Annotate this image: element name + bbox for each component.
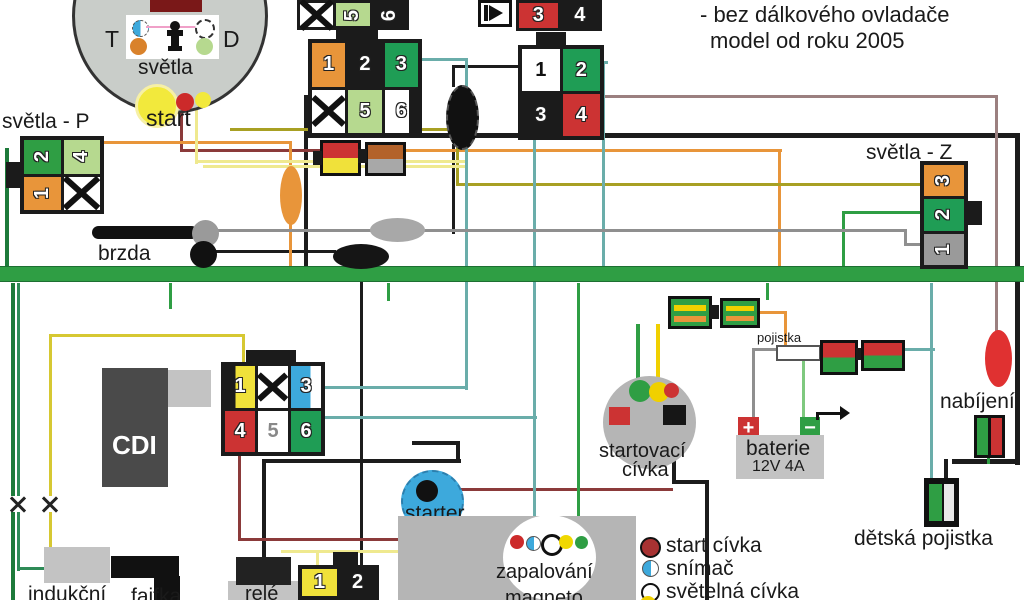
pin: 1 <box>225 366 255 408</box>
wire-gray <box>752 348 755 418</box>
lamp-dot-icon <box>195 19 215 39</box>
pin: 4 <box>64 140 101 174</box>
magneto-label-2: magneto <box>505 587 583 600</box>
pin: 6 <box>373 3 406 27</box>
legend-item-label: snímač <box>666 557 734 581</box>
fuse-block <box>320 140 361 176</box>
wire-green <box>577 283 580 541</box>
charging-bulb-icon <box>985 330 1012 387</box>
wire-black <box>452 144 455 234</box>
wire-yellow <box>49 334 245 337</box>
wire-black <box>262 459 266 560</box>
gauge-top-block <box>150 0 202 12</box>
child-fuse-label: dětská pojistka <box>854 527 993 551</box>
spark-plug-cap-label: fajfka <box>131 585 181 600</box>
spark-plug-cap <box>111 556 179 578</box>
cross-pin <box>312 90 345 134</box>
pin: 5 <box>258 411 288 453</box>
wire-light-yellow <box>195 108 198 164</box>
wire-brown <box>995 95 998 333</box>
pin: 2 <box>340 569 375 596</box>
pin: 3 <box>924 165 964 196</box>
relay-label: relé <box>245 583 278 600</box>
indicator-bulb-icon <box>280 166 302 225</box>
junction-cross-icon <box>10 496 26 512</box>
bulb-icon <box>333 244 389 269</box>
wire-brown <box>600 95 998 98</box>
connector-tab <box>313 151 322 165</box>
wire-green <box>17 283 20 571</box>
cdi-attachment <box>168 370 211 407</box>
wire-green <box>842 211 845 271</box>
fuse-block <box>365 142 406 176</box>
brake-label: brzda <box>98 242 151 266</box>
cross-pin <box>258 366 288 408</box>
pin: 4 <box>563 94 601 136</box>
indicator-right-label: D <box>223 26 240 53</box>
wire-green <box>387 283 390 301</box>
bulb-icon <box>446 85 479 150</box>
pin: 2 <box>348 43 381 87</box>
legend-start-coil-icon <box>640 537 661 558</box>
magneto-plug-connector: 1 2 <box>298 565 379 600</box>
coil-black-terminal <box>663 405 686 425</box>
connector-tab <box>358 149 367 163</box>
battery-spec: 12V 4A <box>752 458 804 476</box>
pin: 1 <box>24 177 61 211</box>
coil-green-dot-icon <box>629 380 651 402</box>
cell <box>944 484 954 521</box>
pin: 3 <box>519 3 558 28</box>
wire-dark-red <box>238 452 241 541</box>
connector-tab <box>966 201 982 225</box>
rear-lights-connector: 3 2 1 <box>920 161 968 269</box>
wire-black <box>360 255 363 570</box>
ground-bus <box>0 266 1024 282</box>
induction-coil <box>44 547 110 583</box>
bulb-icon <box>370 218 425 242</box>
legend-sensor-icon <box>642 560 659 577</box>
arrow-line <box>816 412 842 415</box>
wire-teal <box>533 134 536 544</box>
pin: 1 <box>302 569 337 596</box>
arrow-line <box>816 412 819 420</box>
wire-teal <box>802 358 805 418</box>
wire-dark-red <box>430 488 673 491</box>
pin: 3 <box>291 366 321 408</box>
handlebar-connector: 1 2 3 5 6 <box>308 39 422 137</box>
pin: 2 <box>924 199 964 230</box>
sensor-dot-icon <box>132 20 149 37</box>
wire-black <box>412 441 460 445</box>
induction-coil-label: indukční <box>28 583 106 600</box>
stripe <box>674 305 706 311</box>
brake-switch-black-icon <box>190 241 217 268</box>
pin: 1 <box>312 43 345 87</box>
pin: 3 <box>522 94 560 136</box>
cdi-label: CDI <box>112 430 157 461</box>
magneto-label-1: zapalování <box>496 561 593 584</box>
fuse-holder <box>668 296 712 329</box>
pin: 3 <box>385 43 418 87</box>
starter-terminal-icon <box>416 480 438 502</box>
coil-red-terminal <box>609 407 630 425</box>
pin: 1 <box>924 234 964 265</box>
arrow-right-icon <box>840 406 850 420</box>
pin: 4 <box>225 411 255 453</box>
fuse-symbol <box>776 345 821 361</box>
pin: 2 <box>24 140 61 174</box>
start-coil-label-2: cívka <box>622 459 669 482</box>
cross-pin <box>300 3 333 27</box>
wire-black <box>952 459 1020 464</box>
start-label: start <box>146 105 191 132</box>
cross-pin <box>64 177 101 211</box>
wire-teal <box>930 283 933 480</box>
wiring-diagram: T D světla start světla - P 2 4 1 brzda … <box>0 0 1024 600</box>
front-lights-label: světla - P <box>2 110 90 134</box>
turn-dot-icon <box>130 38 147 55</box>
wire-dark-green <box>11 283 15 600</box>
wire-green <box>842 211 924 214</box>
wire-olive <box>456 183 926 186</box>
wire-black <box>452 65 455 87</box>
magneto-green-dot-icon <box>575 536 588 549</box>
wire-yellow <box>49 334 52 550</box>
indicator-left-label: T <box>105 26 119 53</box>
pin: 6 <box>291 411 321 453</box>
wire-dark-red <box>180 149 323 152</box>
diagram-title-line1: - bez dálkového ovladače <box>700 2 950 28</box>
fuse-label: pojistka <box>757 330 801 345</box>
stripe <box>726 316 754 321</box>
cdi-unit: CDI <box>102 368 168 487</box>
legend-item-label: světelná cívka <box>666 580 799 600</box>
cdi-connector: 1 3 4 5 6 <box>221 362 325 456</box>
magneto-start-coil-dot-icon <box>510 535 524 549</box>
wire-black <box>1015 133 1020 465</box>
charging-connector <box>974 415 1005 458</box>
wire-black <box>452 65 520 68</box>
cell <box>929 484 942 521</box>
pin: 4 <box>561 3 600 28</box>
wire-black <box>456 443 460 461</box>
fuse-plug <box>820 340 858 375</box>
fuse-holder <box>720 298 760 328</box>
flag-icon <box>478 0 512 27</box>
pin: 1 <box>522 49 560 91</box>
wire-teal <box>322 416 537 419</box>
wire-black <box>672 480 709 484</box>
fuse-plug <box>861 340 905 371</box>
magneto-sensor-dot-icon <box>526 536 541 551</box>
lights-label: světla <box>138 56 193 80</box>
stripe <box>726 306 754 311</box>
pin: 5 <box>336 3 369 27</box>
charging-label: nabíjení <box>940 390 1015 414</box>
wire-teal <box>322 386 468 389</box>
wire-gray <box>207 229 907 232</box>
coil-red-dot-icon <box>664 383 679 398</box>
brake-lever <box>92 226 198 239</box>
key-icon <box>166 21 184 55</box>
wire-teal <box>420 58 468 61</box>
magneto-yellow-dot-icon <box>559 535 573 549</box>
wire-green <box>766 283 769 300</box>
diagram-title-line2: model od roku 2005 <box>710 28 904 54</box>
pin: 5 <box>348 90 381 134</box>
wire-orange <box>778 149 781 268</box>
start-small-dot-icon <box>195 92 211 108</box>
connector-tab <box>710 305 719 319</box>
wire-green <box>169 283 172 309</box>
key-switch-connector: 1 2 3 4 <box>518 45 604 140</box>
child-fuse <box>924 478 959 527</box>
stripe <box>674 316 706 322</box>
top-right-connector: 3 4 <box>516 0 602 31</box>
junction-cross-icon <box>42 496 58 512</box>
drive-dot-icon <box>196 38 213 55</box>
pin: 6 <box>385 90 418 134</box>
legend-item-label: start cívka <box>666 534 762 558</box>
front-lights-connector: 2 4 1 <box>20 136 104 214</box>
wire-black <box>204 250 336 253</box>
relay <box>236 557 291 585</box>
battery: baterie 12V 4A <box>736 435 824 479</box>
pin: 2 <box>563 49 601 91</box>
wire-green <box>636 324 640 384</box>
